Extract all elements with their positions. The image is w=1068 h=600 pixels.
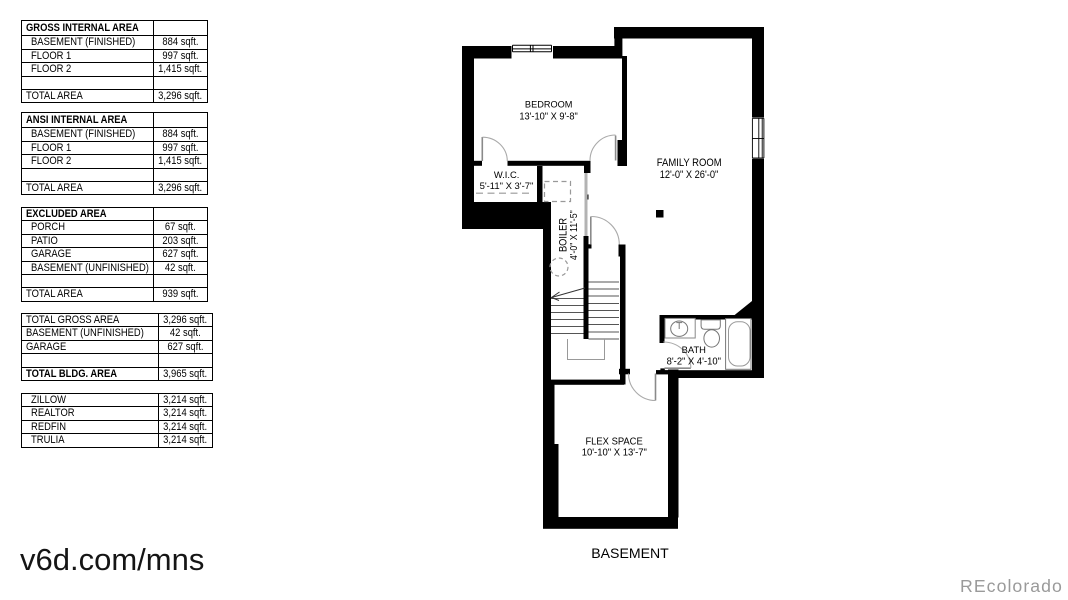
svg-text:W.I.C.: W.I.C. (494, 170, 520, 180)
svg-text:FAMILY ROOM: FAMILY ROOM (657, 157, 722, 169)
svg-text:FLEX SPACE: FLEX SPACE (585, 437, 642, 448)
svg-text:8'-2" X 4'-10": 8'-2" X 4'-10" (667, 356, 722, 367)
svg-text:BASEMENT: BASEMENT (591, 546, 669, 562)
svg-text:10'-10" X 13'-7": 10'-10" X 13'-7" (582, 448, 648, 459)
svg-text:13'-10" X 9'-8": 13'-10" X 9'-8" (519, 111, 578, 122)
svg-text:5'-11" X 3'-7": 5'-11" X 3'-7" (480, 181, 534, 191)
svg-text:12'-0" X 26'-0": 12'-0" X 26'-0" (660, 169, 719, 181)
svg-text:BATH: BATH (682, 345, 706, 356)
svg-text:4'-0" X 11'-5": 4'-0" X 11'-5" (568, 210, 580, 260)
svg-text:BEDROOM: BEDROOM (525, 100, 573, 110)
